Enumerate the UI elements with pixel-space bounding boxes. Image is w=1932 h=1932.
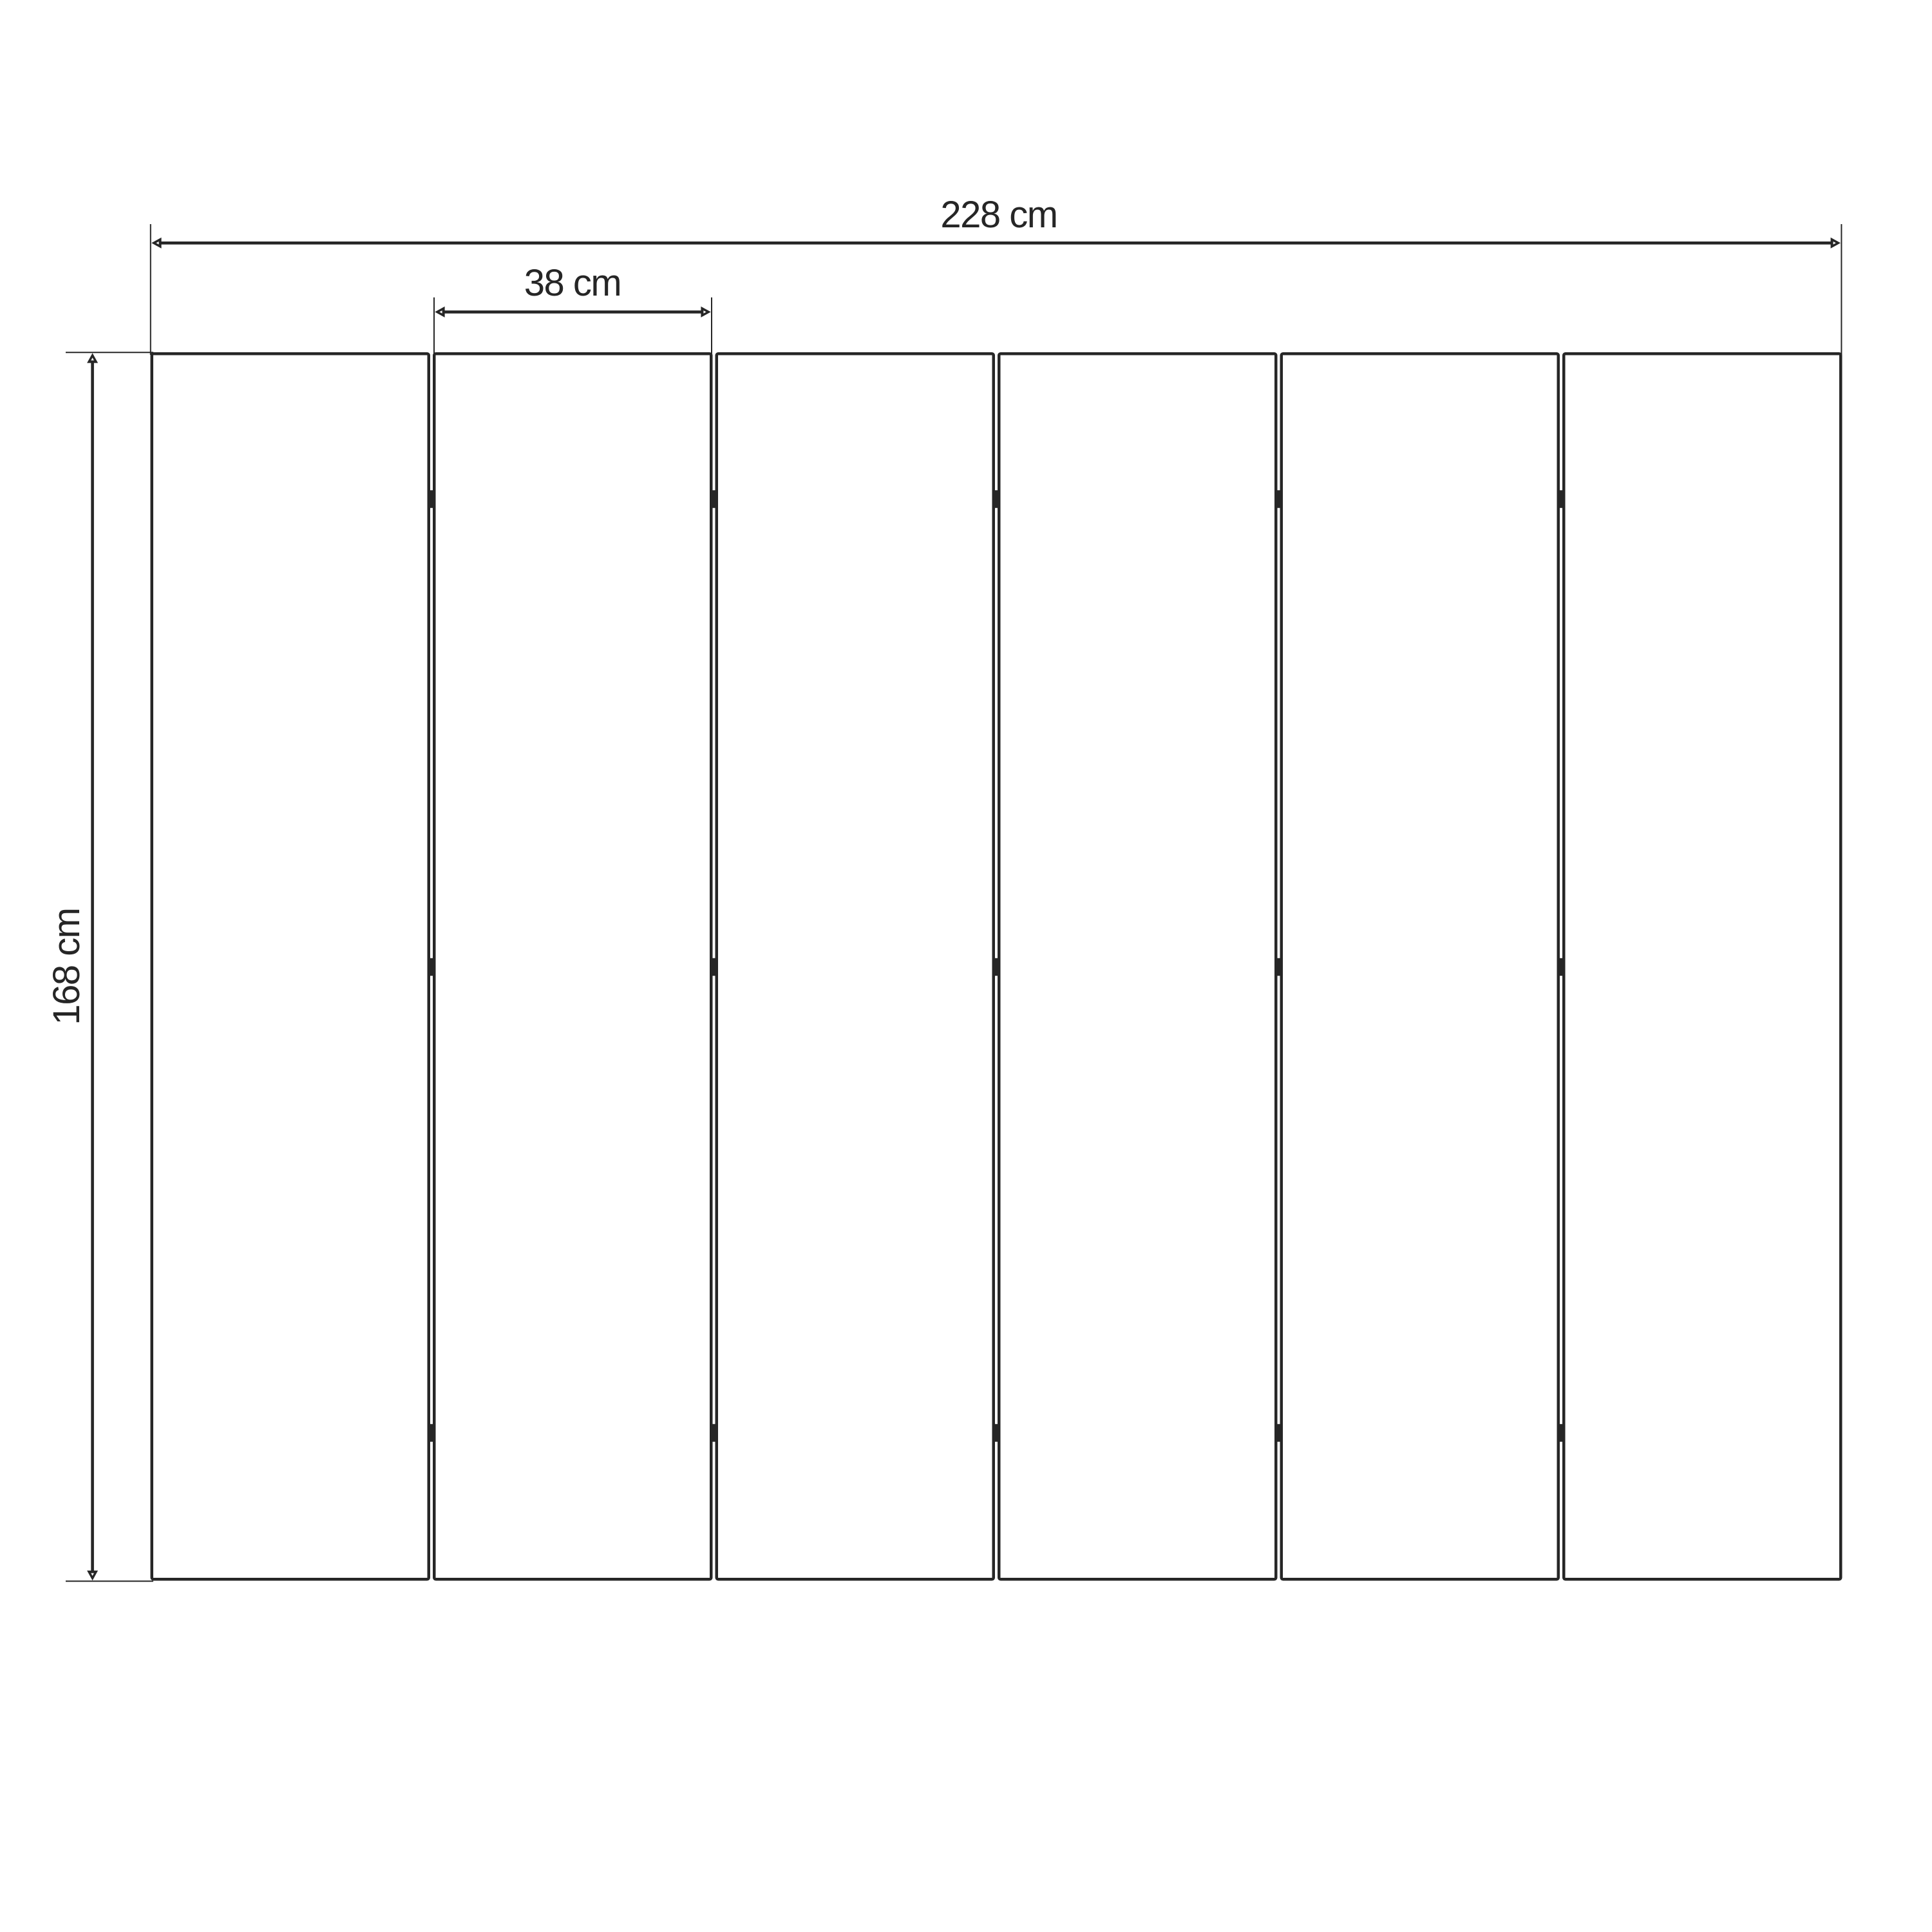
svg-text:38 cm: 38 cm	[524, 262, 621, 304]
svg-text:228 cm: 228 cm	[940, 194, 1057, 236]
svg-text:168 cm: 168 cm	[46, 908, 88, 1025]
